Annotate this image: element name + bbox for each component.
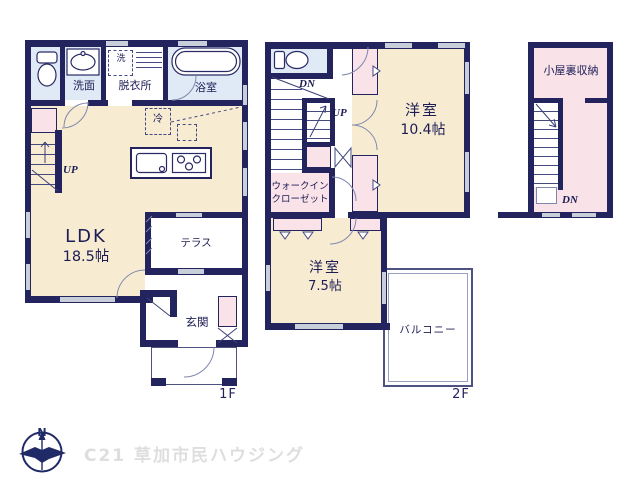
window	[465, 62, 469, 94]
wall	[132, 100, 248, 106]
wall	[330, 98, 335, 146]
closet-bedroom75-left	[273, 218, 322, 231]
wall	[242, 275, 248, 347]
closet-2f-hall	[305, 146, 331, 168]
window	[243, 168, 247, 196]
window	[26, 264, 30, 290]
wall	[216, 340, 248, 347]
wall	[302, 98, 307, 170]
window	[465, 152, 469, 192]
label-dressing: 脱衣所	[119, 80, 152, 92]
wall	[607, 42, 613, 218]
label-ldk: LDK	[65, 227, 107, 247]
window	[243, 85, 247, 105]
wall	[55, 130, 62, 193]
stairs-1f-up	[31, 135, 55, 193]
north-compass-icon: N	[16, 424, 74, 478]
stairs-attic-down	[534, 103, 558, 187]
pantry-dashed-box	[177, 124, 197, 141]
wall	[88, 100, 108, 106]
shoe-cabinet	[218, 296, 237, 327]
closet-bedroom104-bottom	[352, 155, 378, 212]
wall	[140, 290, 146, 347]
window	[542, 213, 560, 217]
window	[266, 265, 270, 291]
label-bedroom75: 洋室	[309, 261, 341, 276]
wall	[585, 98, 607, 103]
wall	[25, 100, 65, 106]
stairs-attic-landing	[536, 187, 557, 204]
label-balcony: バルコニー	[399, 325, 456, 337]
room-toilet-1f	[31, 47, 60, 100]
window	[438, 43, 465, 48]
label-up-2f: UP	[332, 107, 347, 119]
label-dn-attic: DN	[562, 194, 578, 206]
window	[60, 297, 115, 302]
wall	[145, 212, 151, 275]
window	[178, 41, 207, 46]
label-floor-2f: 2F	[452, 388, 470, 402]
window	[295, 324, 343, 329]
wall	[170, 290, 177, 317]
wall	[329, 168, 335, 218]
label-fridge: 冷	[153, 114, 163, 125]
wall	[151, 378, 166, 386]
wall	[146, 340, 178, 347]
label-bedroom104: 洋室	[405, 102, 439, 119]
window	[26, 212, 30, 238]
wall	[242, 40, 248, 275]
label-washroom: 洗面	[73, 80, 95, 92]
wall	[60, 47, 65, 100]
label-floor-1f: 1F	[219, 388, 237, 402]
closet-1f	[31, 108, 57, 133]
label-up-1f: UP	[63, 164, 78, 176]
wall	[558, 98, 563, 190]
wall	[528, 42, 613, 48]
window	[382, 272, 386, 304]
window	[385, 43, 412, 48]
window	[243, 122, 247, 150]
compass-north-letter: N	[37, 426, 46, 439]
room-toilet-2f	[271, 48, 327, 73]
wall	[101, 47, 106, 100]
label-entrance: 玄関	[186, 316, 209, 329]
label-wic-line1: ウォークイン	[271, 182, 328, 192]
window	[572, 213, 596, 217]
window	[106, 41, 128, 46]
company-watermark: C21 草加市民ハウジング	[84, 441, 305, 466]
walk-in-closet	[271, 173, 329, 212]
label-ldk-size: 18.5帖	[63, 250, 110, 266]
closet-bedroom104-top	[352, 48, 378, 95]
label-bath: 浴室	[195, 82, 217, 94]
label-bedroom104-size: 10.4帖	[400, 123, 445, 138]
stairs-2f-up-to-attic	[307, 103, 330, 142]
window	[176, 213, 202, 217]
label-dn-2f: DN	[299, 78, 315, 90]
wall	[25, 40, 248, 47]
label-washer: 洗	[116, 55, 125, 65]
wall	[302, 142, 335, 146]
closet-bedroom75-right	[350, 218, 381, 231]
wall	[163, 47, 168, 100]
label-attic-storage: 小屋裏収納	[544, 65, 599, 77]
wall	[348, 212, 470, 218]
floorplan-canvas: 洗面 脱衣所 浴室 洗 冷 LDK 18.5帖 テラス 玄関 UP 1F DN …	[0, 0, 640, 480]
wall	[222, 378, 237, 386]
wall	[265, 212, 335, 218]
window	[178, 269, 204, 274]
kitchen-island	[130, 147, 212, 179]
label-bedroom75-size: 7.5帖	[308, 280, 342, 294]
linen-shelf	[136, 48, 162, 68]
wall	[528, 42, 534, 218]
label-wic-line2: クローゼット	[271, 195, 328, 205]
wall	[327, 42, 333, 79]
label-terrace: テラス	[180, 238, 211, 250]
